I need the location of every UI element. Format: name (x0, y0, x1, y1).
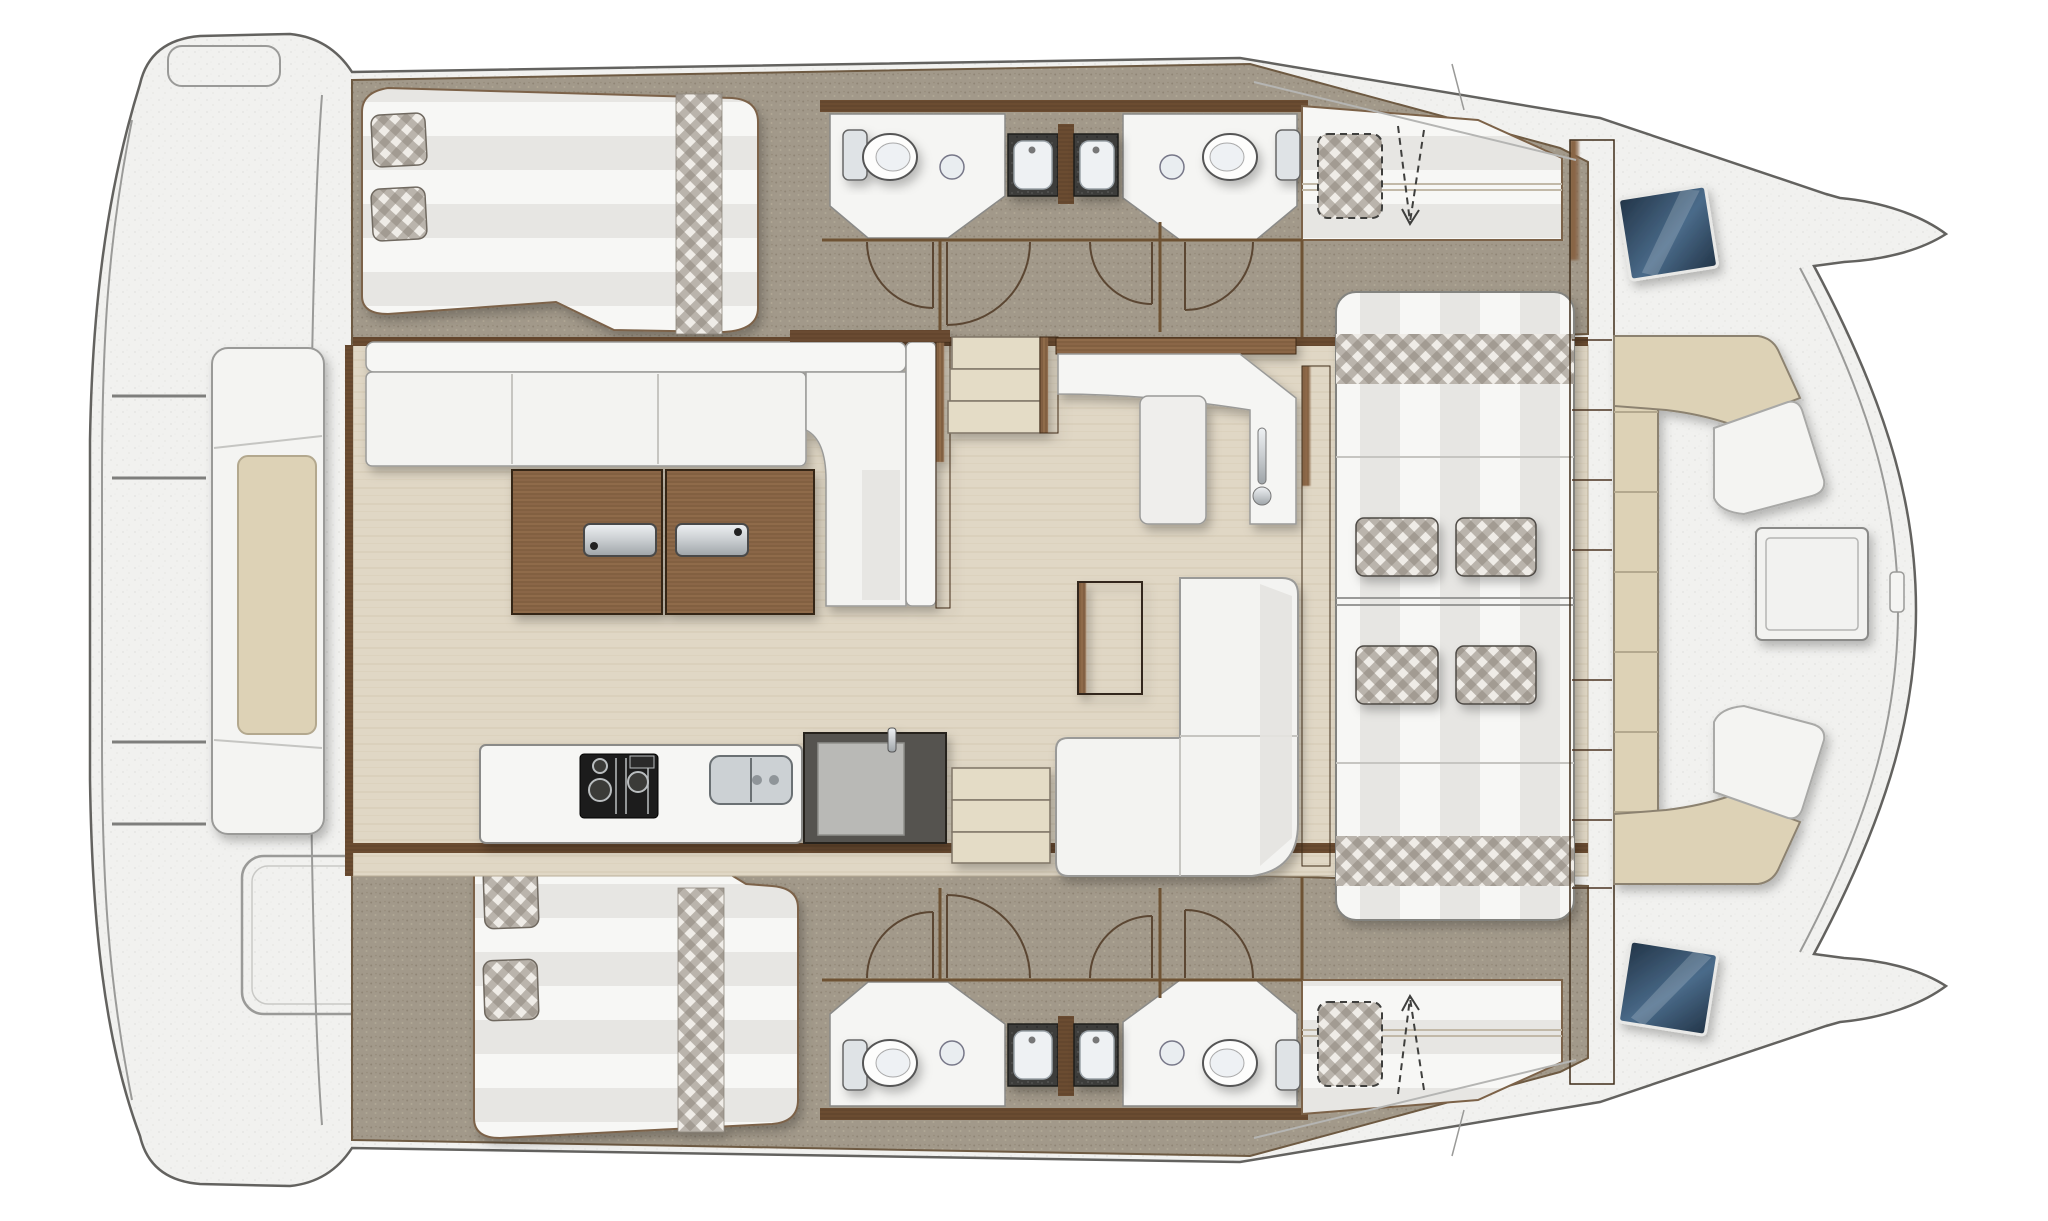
vanity-counter (1074, 134, 1118, 196)
plaid-pillow (371, 187, 428, 242)
table-handle (584, 524, 656, 556)
plaid-runner (676, 94, 722, 334)
salon-aft-floor-trim (345, 345, 353, 876)
settee-back (366, 342, 906, 372)
main-salon (345, 292, 1588, 920)
washbasin (1160, 1041, 1184, 1065)
double-bed-top (362, 88, 758, 334)
companionway-steps-bottom (952, 768, 1050, 863)
bathroom-wall-top (820, 100, 1308, 112)
settee-corner-back (906, 342, 936, 606)
vanity-divider (1058, 124, 1074, 204)
dinette-plaid-band (1336, 836, 1574, 886)
step (952, 337, 1040, 369)
washbasin (940, 1041, 964, 1065)
sideboard-wood (790, 330, 950, 342)
toilet-bowl-inner (1210, 143, 1244, 171)
bulkhead-shelves (1570, 140, 1614, 1084)
toilet-tank (1276, 130, 1300, 180)
plaid-stool (1456, 646, 1536, 704)
burner-icon (628, 772, 648, 792)
plaid-stool (1356, 518, 1438, 576)
toilet-tank (1276, 1040, 1300, 1090)
faucet-icon (1029, 1037, 1036, 1044)
step (948, 401, 1040, 433)
vanity-counter (1074, 1024, 1118, 1086)
aft-bench-cushion (238, 456, 316, 734)
faucet-icon (769, 775, 779, 785)
floor-plan-canvas (0, 0, 2048, 1221)
toilet-bowl-inner (876, 1049, 910, 1077)
faucet-icon (1029, 147, 1036, 154)
bulkhead-wood (1570, 140, 1614, 1084)
vanity-counter (1008, 134, 1058, 196)
dinette-plaid-band (1336, 334, 1574, 384)
bathroom-wall-bottom (820, 1108, 1308, 1120)
optional-berth-cushion (1318, 1002, 1382, 1086)
step (952, 832, 1050, 863)
burner-icon (589, 779, 611, 801)
handle-button-icon (734, 528, 742, 536)
plaid-runner (678, 888, 724, 1132)
washbasin (1160, 155, 1184, 179)
foredeck-latch (1890, 572, 1904, 612)
settee-wood-cap (936, 342, 950, 608)
chart-counter-wood-trim (1056, 338, 1296, 354)
floor-plan-page: catamaran-yacht-interior-deck-plan (0, 0, 2048, 1221)
bow-table (1756, 528, 1868, 640)
vanity-counter (1008, 1024, 1058, 1086)
glass-hatch-bottom (1618, 941, 1718, 1036)
steps-side-wood (1040, 337, 1058, 433)
settee-seat (366, 372, 806, 466)
plaid-pillow (483, 959, 539, 1021)
stove-grill-icon (630, 756, 654, 768)
toilet (843, 130, 917, 180)
door-handle-knob (1253, 487, 1271, 505)
plaid-stool (1456, 518, 1536, 576)
step (950, 369, 1040, 401)
settee-shade (862, 470, 900, 600)
toilet-bowl-inner (1210, 1049, 1244, 1077)
dinette-table-group (1336, 292, 1574, 920)
companionway-steps-top (948, 337, 1058, 433)
refrigerator-panel (818, 743, 904, 835)
faucet-icon (1093, 147, 1100, 154)
dinette-side-rail (1302, 366, 1330, 866)
sofa-shade (1260, 584, 1292, 866)
aft-bench (212, 348, 324, 834)
plaid-stool (1356, 646, 1438, 704)
glass-hatch-top (1618, 186, 1718, 281)
refrigerator-handle (888, 728, 896, 752)
handle-button-icon (590, 542, 598, 550)
counter-module (1140, 396, 1206, 524)
door-handle (1258, 428, 1266, 484)
coffee-table (1078, 582, 1142, 694)
optional-berth-cushion (1318, 134, 1382, 218)
toilet (843, 1040, 917, 1090)
faucet-icon (752, 775, 762, 785)
washbasin (940, 155, 964, 179)
step (952, 800, 1050, 832)
bow-table-group (1756, 528, 1868, 640)
faucet-icon (1093, 1037, 1100, 1044)
step (952, 768, 1050, 800)
plaid-pillow (371, 113, 428, 168)
burner-icon (593, 759, 607, 773)
dinette (1302, 292, 1574, 920)
galley (480, 728, 946, 843)
toilet-bowl-inner (876, 143, 910, 171)
folding-table (512, 470, 814, 614)
double-bed-bottom (474, 856, 798, 1138)
vanity-divider (1058, 1016, 1074, 1096)
bow-seat-spine (1614, 336, 1658, 884)
